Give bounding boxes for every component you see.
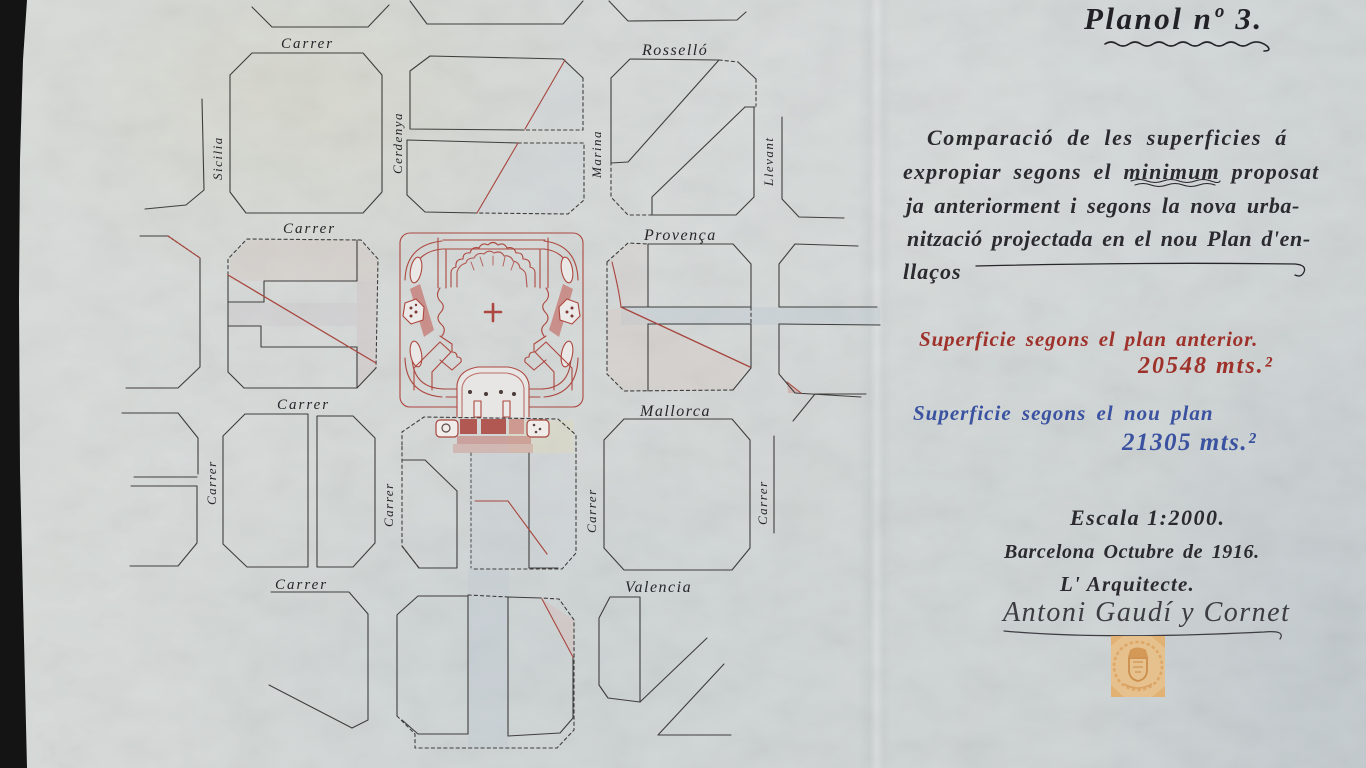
svg-text:Mallorca: Mallorca — [639, 403, 711, 420]
svg-text:Carrer: Carrer — [204, 460, 219, 505]
svg-text:Provença: Provença — [643, 227, 717, 244]
svg-text:Carrer: Carrer — [381, 482, 396, 527]
svg-text:Carrer: Carrer — [275, 577, 328, 593]
svg-text:Carrer: Carrer — [281, 36, 334, 52]
svg-text:Sicilia: Sicilia — [210, 136, 225, 180]
svg-text:Rosselló: Rosselló — [641, 42, 708, 59]
svg-text:Carrer: Carrer — [283, 221, 336, 237]
svg-text:Marina: Marina — [589, 130, 604, 179]
svg-text:Carrer: Carrer — [755, 480, 770, 525]
svg-text:Llevant: Llevant — [761, 137, 776, 188]
svg-text:Cerdenya: Cerdenya — [390, 112, 405, 174]
svg-text:Carrer: Carrer — [584, 488, 599, 533]
svg-text:Valencia: Valencia — [625, 579, 692, 596]
svg-text:Carrer: Carrer — [277, 397, 330, 413]
